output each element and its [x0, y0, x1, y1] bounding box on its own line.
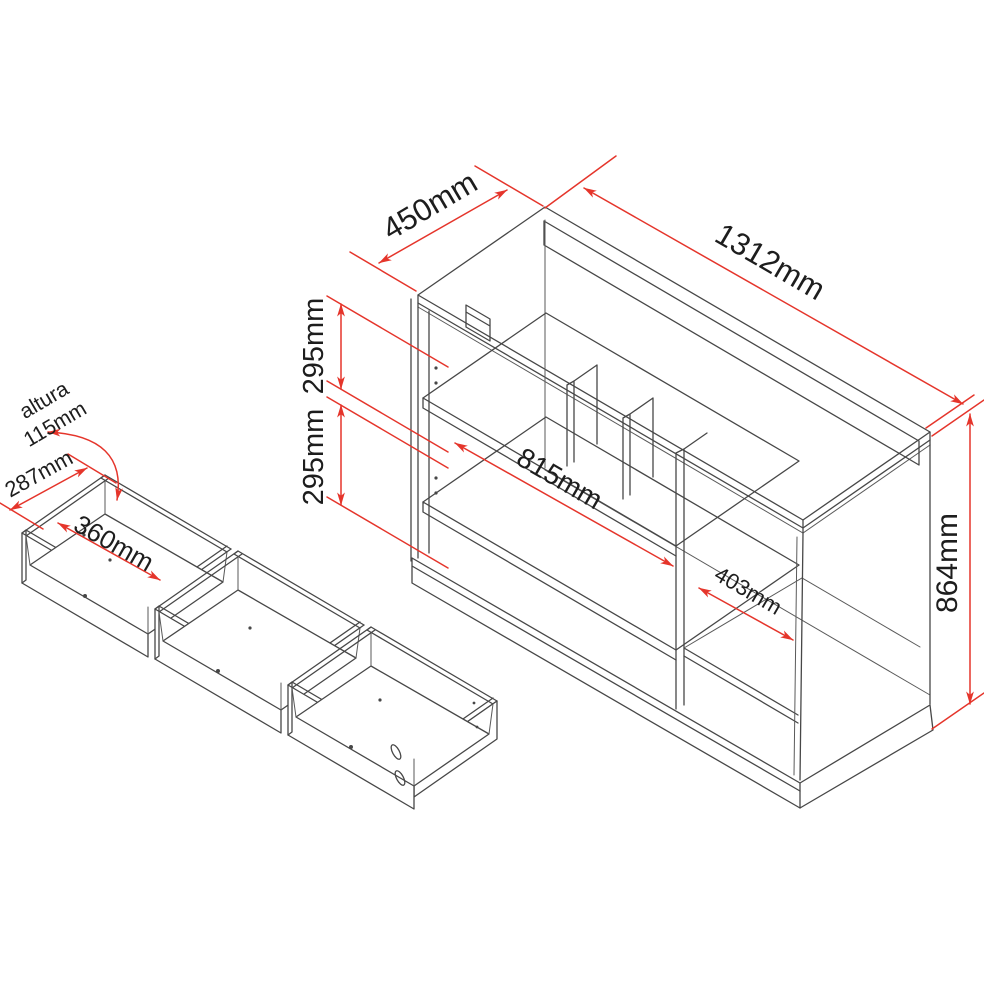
ext-shelf-4	[327, 497, 448, 568]
left-side-panel	[411, 299, 429, 561]
dim-inner-815	[455, 443, 673, 566]
label-right-compartment: 403mm	[710, 561, 786, 620]
label-height: 864mm	[931, 513, 964, 613]
ext-shelf-2	[327, 381, 448, 452]
label-upper-shelf: 295mm	[298, 298, 330, 395]
cabinet-top-panel	[418, 207, 930, 520]
furniture-diagram: 450mm 1312mm 864mm 295mm 295mm 815mm 403…	[0, 0, 984, 985]
label-inner-width: 815mm	[512, 442, 608, 516]
plinth-base	[412, 558, 933, 808]
ext-drawer-far	[68, 454, 116, 483]
label-lower-shelf: 295mm	[298, 409, 330, 506]
ext-shelf-1	[327, 296, 448, 367]
ext-depth-near	[350, 252, 416, 291]
ext-drawer-near	[0, 503, 43, 529]
ext-depth-far	[475, 166, 543, 206]
dimension-drawing-page: 450mm 1312mm 864mm 295mm 295mm 815mm 403…	[0, 0, 984, 985]
ext-shelf-3	[327, 397, 448, 468]
ext-height-bottom	[932, 693, 984, 729]
